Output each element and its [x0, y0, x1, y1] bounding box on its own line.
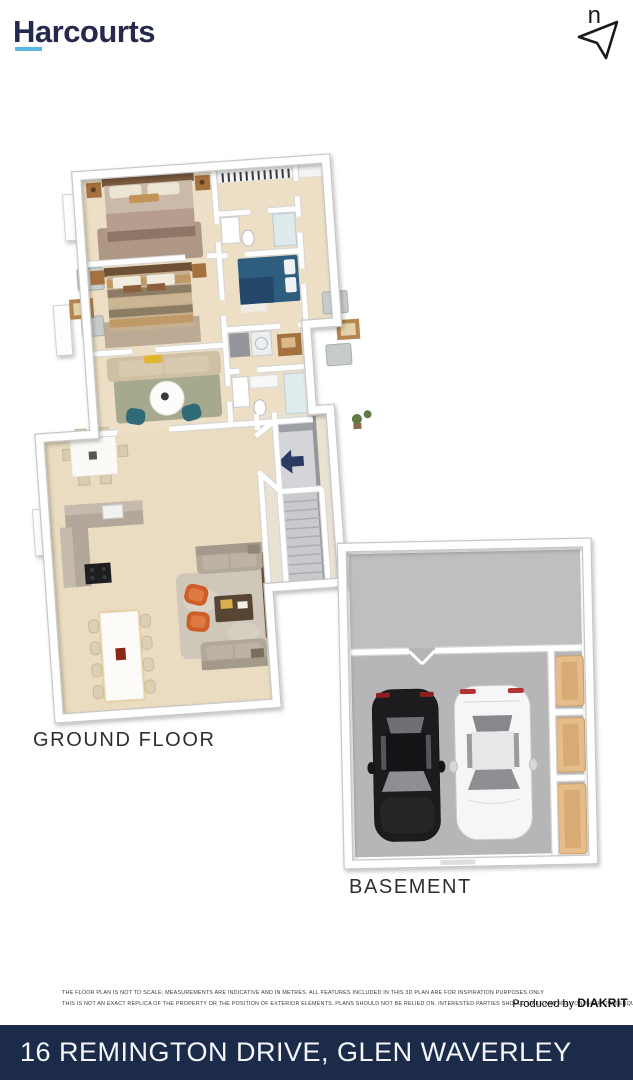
black-car — [366, 689, 447, 843]
disclaimer-line2: THIS IS NOT AN EXACT REPLICA OF THE PROP… — [62, 999, 540, 1010]
producer-credit: Produced by DIAKRIT — [512, 996, 628, 1010]
basement-storage-room-floor — [349, 550, 582, 650]
produced-by-text: Produced by — [512, 998, 574, 1010]
producer-name: DIAKRIT — [577, 996, 628, 1010]
ground-floor-label: GROUND FLOOR — [33, 729, 216, 752]
entry-plants-icon — [351, 410, 372, 429]
white-car — [448, 685, 539, 841]
sitting-room-furniture — [106, 350, 225, 428]
address-bar: 16 REMINGTON DRIVE, GLEN WAVERLEY — [0, 1025, 633, 1080]
basement-plan — [342, 542, 594, 864]
disclaimer-line1: THE FLOOR PLAN IS NOT TO SCALE; MEASUREM… — [62, 988, 540, 999]
ground-floor-plan — [9, 157, 391, 720]
floorplan-graphic — [0, 0, 633, 980]
basement-label: BASEMENT — [349, 876, 472, 899]
floorplan-page: { "header": { "logo_text": "Harcourts", … — [0, 0, 633, 1080]
disclaimer-text: THE FLOOR PLAN IS NOT TO SCALE; MEASUREM… — [62, 988, 540, 1010]
basement-benches — [555, 656, 587, 855]
property-address: 16 REMINGTON DRIVE, GLEN WAVERLEY — [20, 1037, 572, 1068]
